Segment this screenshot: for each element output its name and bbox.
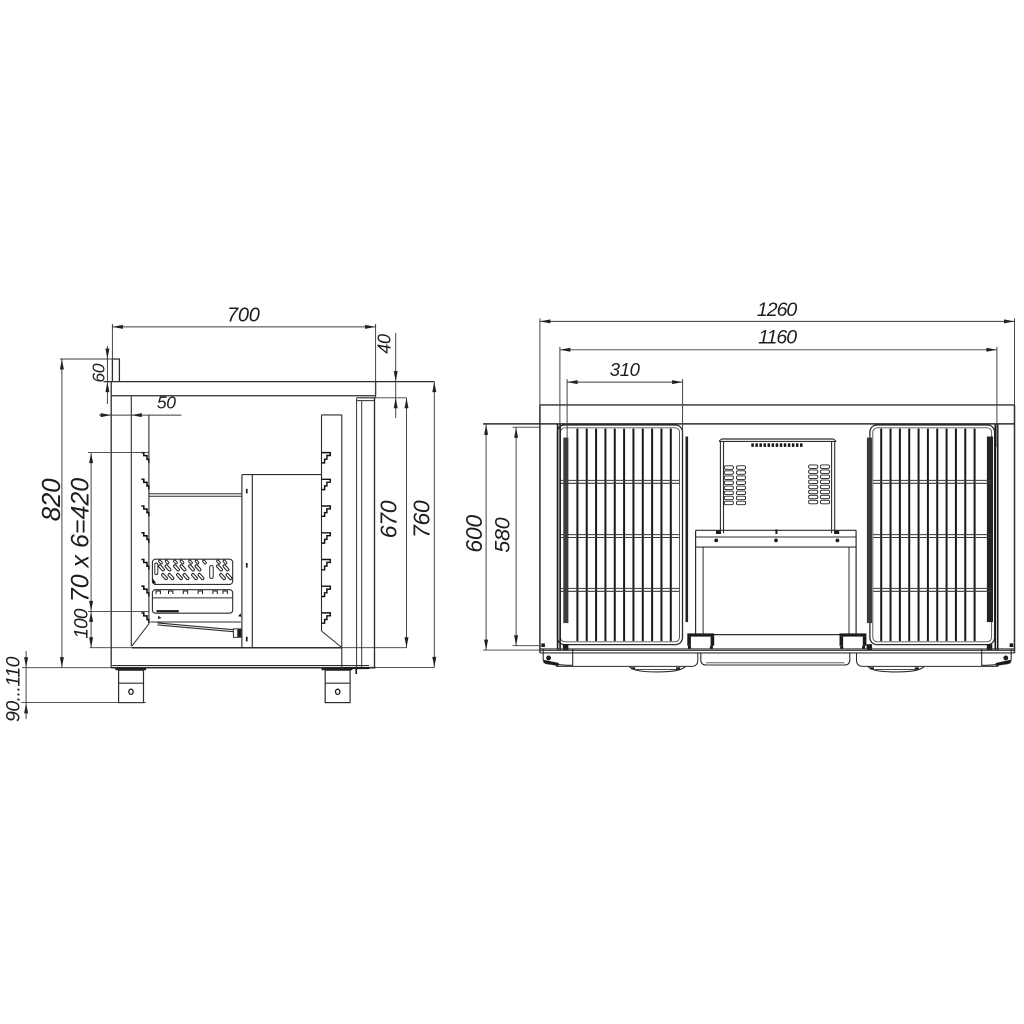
svg-text:50: 50 xyxy=(157,393,176,413)
svg-text:100: 100 xyxy=(72,608,93,639)
svg-text:820: 820 xyxy=(36,478,66,521)
svg-text:90...110: 90...110 xyxy=(3,656,25,722)
svg-text:670: 670 xyxy=(376,500,402,538)
svg-text:580: 580 xyxy=(491,517,515,552)
svg-text:1260: 1260 xyxy=(757,299,798,321)
svg-text:1160: 1160 xyxy=(758,326,797,348)
svg-text:310: 310 xyxy=(610,359,641,380)
svg-text:700: 700 xyxy=(227,304,260,326)
svg-text:60: 60 xyxy=(89,363,109,382)
svg-text:600: 600 xyxy=(461,515,487,553)
svg-text:760: 760 xyxy=(409,500,435,538)
svg-text:70 x 6=420: 70 x 6=420 xyxy=(67,478,95,603)
svg-text:40: 40 xyxy=(375,334,395,354)
